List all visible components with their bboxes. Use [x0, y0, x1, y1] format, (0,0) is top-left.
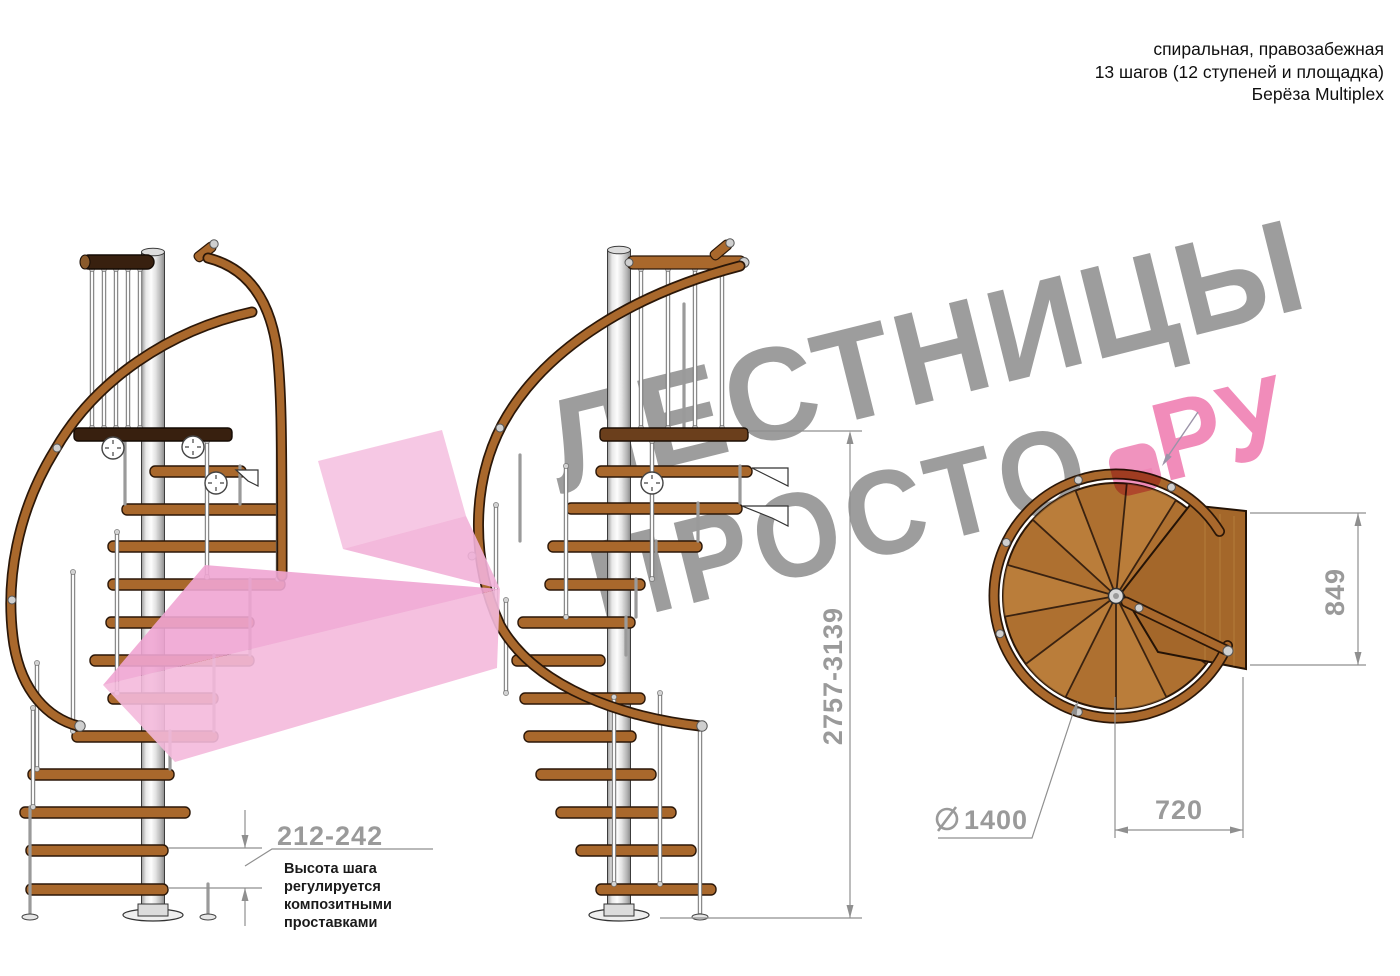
rod-collar [657, 881, 662, 886]
rod-collar [30, 804, 35, 809]
platform-handrail-board [82, 255, 154, 269]
rod-collar [657, 690, 662, 695]
platform-board [74, 428, 232, 441]
step-height-label: 212-242 [277, 821, 383, 851]
step-height-note-line: регулируется [284, 879, 381, 895]
plan-width-label: 720 [1155, 795, 1203, 825]
rod-foot [692, 914, 708, 920]
handrail-fitting [625, 259, 633, 267]
step-board [108, 541, 285, 552]
rod-foot [200, 914, 216, 920]
plan-depth-label: 849 [1320, 568, 1350, 616]
diameter-icon [937, 807, 957, 831]
handrail-end-ball [75, 721, 85, 731]
step-board [28, 769, 174, 780]
dimension-arrow-down [242, 835, 249, 848]
step-height-note-line: композитными [284, 897, 392, 913]
step-bracket [742, 506, 788, 526]
rail-stub-cap [210, 240, 218, 248]
total-height-label: 2757-3139 [818, 607, 848, 745]
step-height-note-line: проставками [284, 915, 377, 931]
rail-joint [8, 596, 16, 604]
title-line-type: спиральная, правозабежная [1095, 38, 1384, 61]
ring-joint [1074, 476, 1082, 484]
dimension-arrow-right [1230, 827, 1243, 834]
pole-cap [608, 246, 631, 254]
handrail-right [208, 258, 282, 576]
rail-bar-joint [1135, 604, 1143, 612]
step-board [20, 807, 190, 818]
rod-collar [649, 576, 654, 581]
rod-collar [493, 502, 498, 507]
step-board [548, 541, 702, 552]
rail-bar-end-ball [1223, 646, 1233, 656]
rod-collar [611, 694, 616, 699]
dimension-arrow-down [847, 905, 854, 918]
staircase-drawing: 2757-3139 212-242 Высота шага регулирует… [0, 0, 1400, 976]
ring-joint [996, 630, 1004, 638]
pole-base-collar [138, 904, 168, 916]
handrail-right-outline [208, 258, 282, 576]
plan-leader-line [1164, 412, 1198, 462]
step-board [596, 466, 752, 477]
step-board [518, 617, 635, 628]
plan-leader-arrowhead [1162, 453, 1172, 466]
rail-joint [53, 444, 61, 452]
title-line-steps: 13 шагов (12 ступеней и площадка) [1095, 61, 1384, 84]
plan-diameter-label: 1400 [964, 805, 1028, 835]
rod-foot [22, 914, 38, 920]
technical-drawing-canvas: ЛЕСТНИЦЫ ПРОСТО .РУ [0, 0, 1400, 976]
staircase-plan-view [994, 474, 1246, 718]
rod-collar [503, 690, 508, 695]
rod-collar [70, 569, 75, 574]
step-board [524, 731, 636, 742]
dimension-arrow-up [847, 431, 854, 444]
plan-center-hub-inner [1113, 593, 1119, 599]
rail-joint [496, 424, 504, 432]
step-board [26, 845, 168, 856]
rail-stub-cap [726, 239, 734, 247]
step-bracket [752, 468, 788, 486]
rod-collar [611, 881, 616, 886]
rod-collar [114, 529, 119, 534]
step-height-note-line: Высота шага [284, 861, 378, 877]
ring-joint [1002, 539, 1010, 547]
dimension-arrow-down [1355, 652, 1362, 665]
title-line-material: Берёза Multiplex [1095, 83, 1384, 106]
pole-base-collar [604, 904, 634, 916]
rod-collar [30, 705, 35, 710]
ring-joint [1167, 483, 1175, 491]
title-annotation: спиральная, правозабежная 13 шагов (12 с… [1095, 38, 1384, 106]
step-board [576, 845, 696, 856]
handrail-end-cap [80, 255, 90, 269]
step-board [150, 466, 246, 477]
step-board [122, 504, 285, 515]
step-board [26, 884, 168, 895]
handrail-end-ball [697, 721, 707, 731]
platform-board [600, 428, 748, 441]
step-board [545, 579, 645, 590]
staircase-side-view-middle [468, 238, 788, 921]
step-board [536, 769, 656, 780]
dimension-arrow-up [1355, 513, 1362, 526]
dimension-arrow-up [242, 888, 249, 901]
rod-collar [34, 660, 39, 665]
dimension-arrow-left [1115, 827, 1128, 834]
rod-collar [563, 614, 568, 619]
rod-collar [563, 463, 568, 468]
rod-collar [503, 597, 508, 602]
